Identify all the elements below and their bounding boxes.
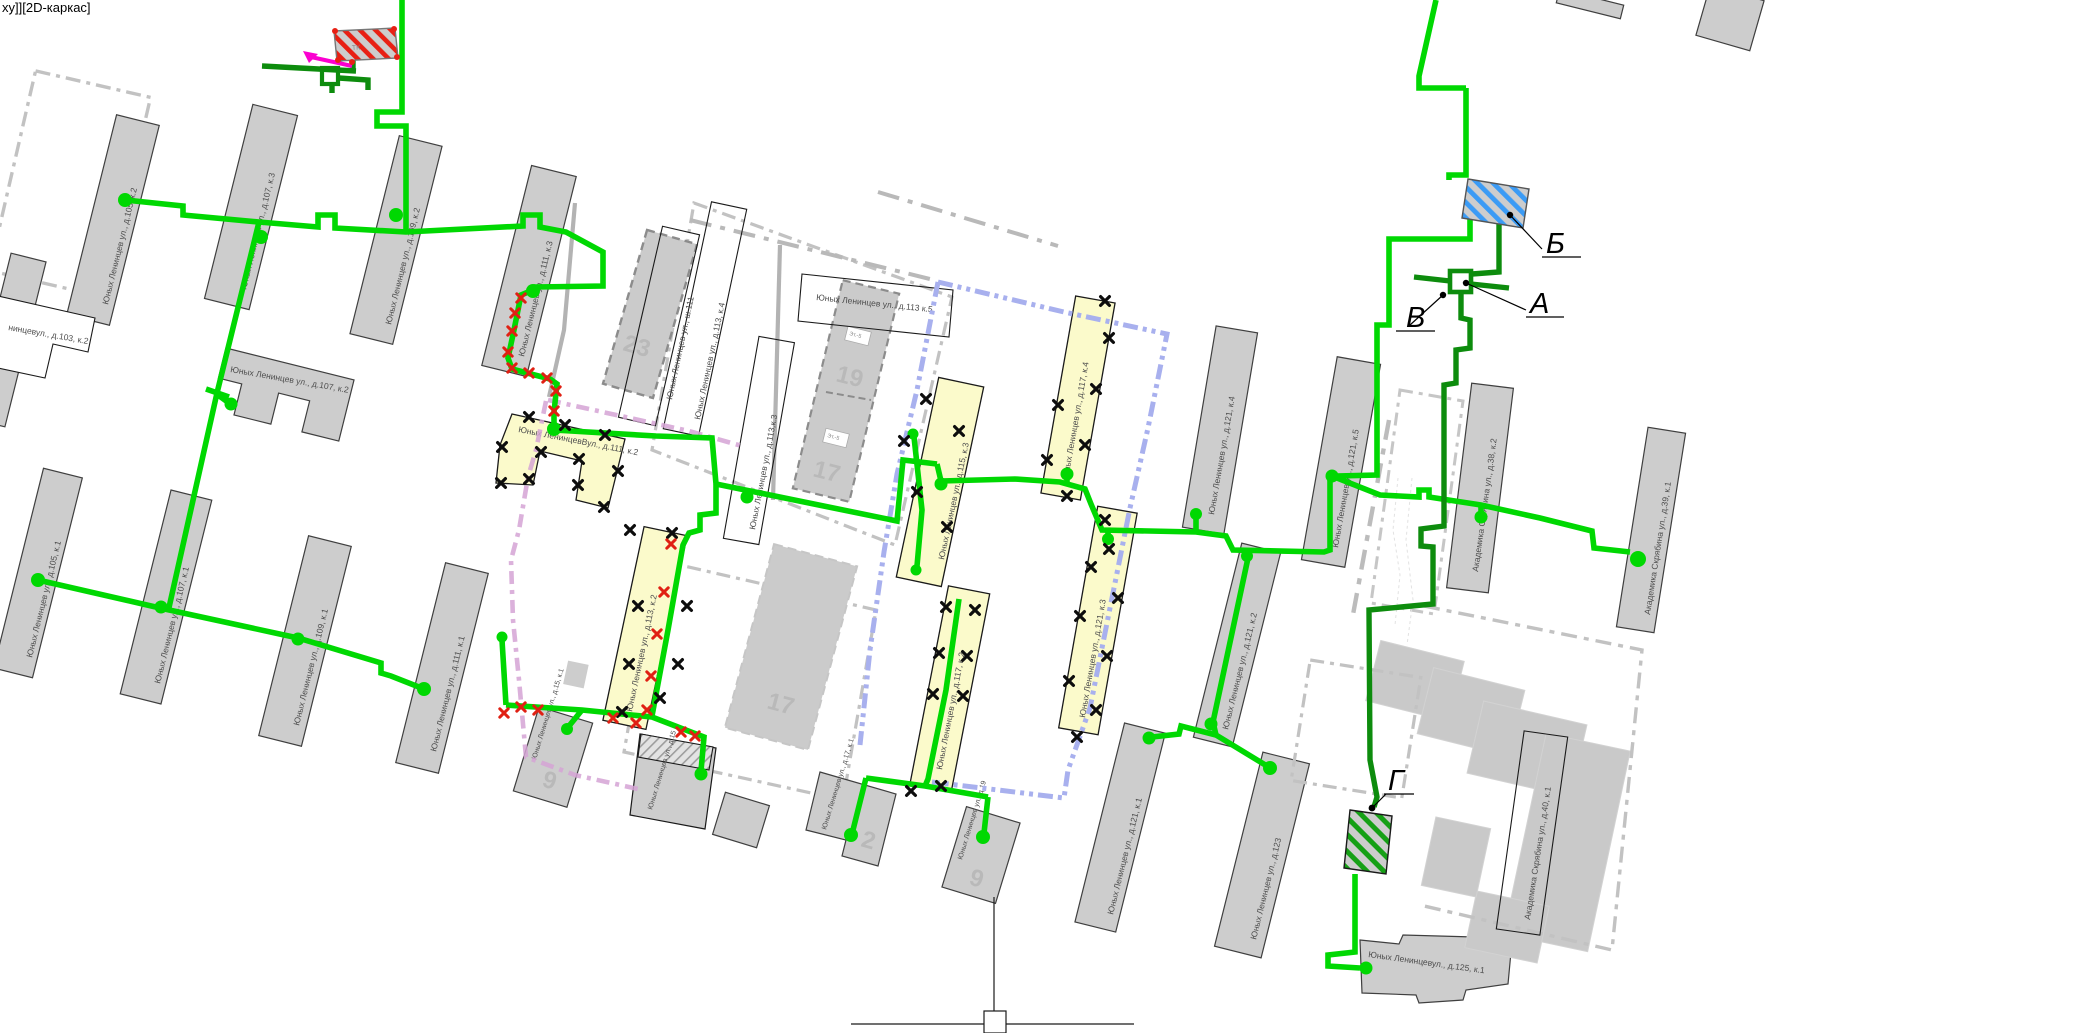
- svg-text:ТК: ТК: [352, 45, 362, 52]
- svg-text:xy]][2D-каркас]: xy]][2D-каркас]: [2, 0, 91, 15]
- svg-text:А: А: [1528, 288, 1549, 320]
- svg-text:Б: Б: [1546, 228, 1565, 260]
- svg-text:В: В: [1406, 302, 1425, 334]
- svg-text:Г: Г: [1388, 765, 1406, 797]
